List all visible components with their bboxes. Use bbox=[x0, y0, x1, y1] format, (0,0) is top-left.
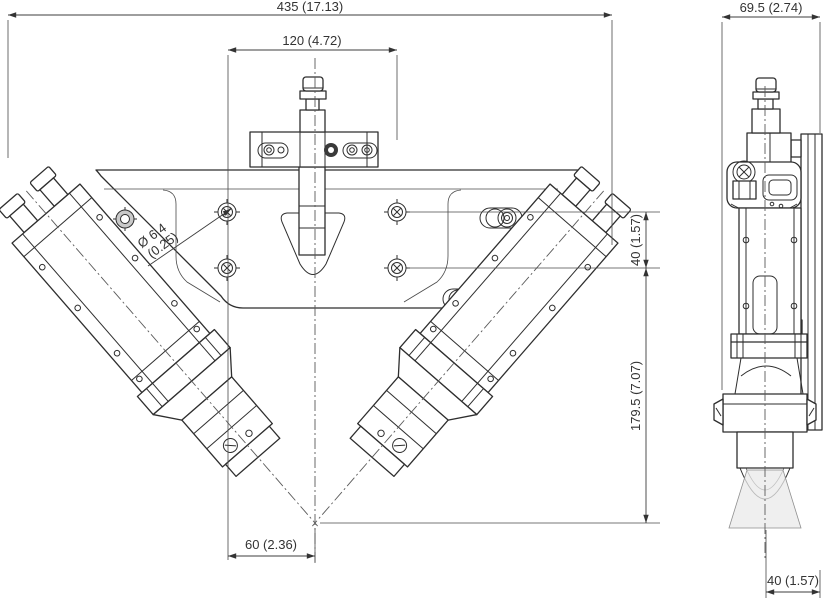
dim-side-beam-offset: 40 (1.57) bbox=[766, 570, 820, 598]
technical-drawing-page: 435 (17.13) 120 (4.72) Ø 6.4 (0.25) 40 (… bbox=[0, 0, 823, 600]
dim-hole-spacing-y-label: 40 (1.57) bbox=[628, 214, 643, 266]
dim-center-offset: 60 (2.36) bbox=[228, 528, 315, 562]
dim-center-offset-label: 60 (2.36) bbox=[245, 537, 297, 552]
front-view bbox=[0, 58, 645, 566]
dim-hole-spacing-x-label: 120 (4.72) bbox=[282, 33, 341, 48]
dim-side-width-label: 69.5 (2.74) bbox=[740, 0, 803, 15]
technical-drawing-canvas: 435 (17.13) 120 (4.72) Ø 6.4 (0.25) 40 (… bbox=[0, 0, 823, 600]
dim-height-to-intersection-label: 179.5 (7.07) bbox=[628, 361, 643, 431]
dim-side-beam-offset-label: 40 (1.57) bbox=[767, 573, 819, 588]
dim-overall-width-label: 435 (17.13) bbox=[277, 0, 344, 14]
side-view bbox=[714, 78, 822, 598]
